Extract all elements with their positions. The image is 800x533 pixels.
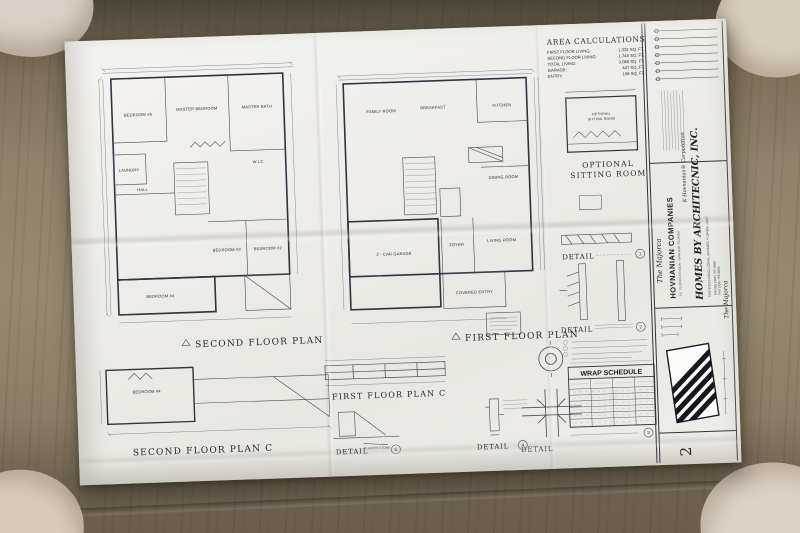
room-label-foyer: FOYER — [449, 242, 464, 248]
detail-3-number: 3 — [647, 430, 650, 435]
sheet-number: 2 — [677, 446, 695, 456]
architect-address: 7430 WILES ROAD, CORAL SPRINGS, FLORIDA … — [705, 216, 712, 297]
area-row-value: 1,748 SQ. FT. — [618, 52, 644, 58]
room-label-bedroom4-c: BEDROOM #4 — [133, 389, 162, 395]
company-name: HOVNANIAN COMPANIES — [665, 197, 678, 299]
room-label-breakfast: BREAKFAST — [420, 104, 446, 110]
room-label-dining: DINING ROOM — [488, 174, 518, 180]
room-label-bedroom2: BEDROOM #2 — [254, 245, 283, 251]
room-label-kitchen: KITCHEN — [492, 102, 511, 108]
architect-name: HOMES BY ARCHITECNIC, INC. — [689, 127, 706, 300]
optional-sitting-room-label2: SITTING ROOM — [588, 117, 615, 122]
detail-1-number: 1 — [639, 251, 642, 256]
wrap-schedule-title: WRAP SCHEDULE — [580, 369, 642, 378]
room-label-hall: HALL — [137, 187, 149, 192]
sheet-drawing: BEDROOM #5 MASTER BEDROOM MASTER BATH LA… — [64, 19, 741, 486]
room-label-living: LIVING ROOM — [487, 237, 516, 243]
area-row-value: 1,332 SQ. FT. — [618, 46, 644, 52]
room-label-garage: 2 - CAR GARAGE — [376, 251, 412, 257]
north-arrow-icon — [182, 339, 190, 345]
company-subline: S.E. FLORIDA DIVISION · MARGATE, FLORIDA — [676, 231, 682, 296]
optional-sitting-title2: SITTING ROOM — [570, 168, 646, 180]
architect-logo — [626, 341, 741, 437]
room-label-master-bedroom: MASTER BEDROOM — [176, 105, 217, 111]
detail-2-number: 2 — [639, 324, 642, 329]
area-calculations-title: AREA CALCULATIONS — [546, 34, 646, 46]
photo-scene: BEDROOM #5 MASTER BEDROOM MASTER BATH LA… — [0, 0, 800, 533]
first-floor-plan-c: FIRST FLOOR PLAN C — [325, 357, 447, 402]
second-floor-plan-title: SECOND FLOOR PLAN — [195, 336, 324, 350]
optional-sitting-room-label1: OPTIONAL — [592, 112, 611, 117]
optional-sitting-room-plan: OPTIONAL SITTING ROOM OPTIONAL SITTING R… — [566, 90, 648, 211]
room-label-bedroom5: BEDROOM #5 — [124, 112, 153, 118]
first-floor-plan-c-title: FIRST FLOOR PLAN C — [332, 389, 447, 402]
revision-lines — [653, 27, 719, 81]
wrap-schedule: WRAP SCHEDULE — [568, 360, 657, 439]
numbered-notes — [563, 338, 648, 360]
room-label-bedroom3: BEDROOM #3 — [213, 247, 242, 253]
area-row-value: 3,080 SQ. FT. — [619, 58, 645, 64]
room-label-wic: W.I.C. — [253, 159, 265, 164]
area-row-value: 447 SQ. FT. — [622, 64, 645, 70]
optional-sitting-title1: OPTIONAL — [582, 159, 634, 170]
room-label-laundry: LAUNDRY — [119, 167, 140, 173]
area-row-label: TOTAL LIVING: — [547, 61, 576, 67]
project-name: The Majorca — [655, 238, 665, 283]
architect-fax: FAX (305) 755-8851 — [717, 266, 722, 295]
detail-1: DETAIL 1 — [562, 233, 645, 262]
scale-bars — [661, 316, 682, 337]
room-label-family: FAMILY ROOM — [366, 108, 396, 114]
detail-1-label: DETAIL — [562, 252, 595, 261]
room-label-master-bath: MASTER BATH — [242, 103, 273, 109]
brand-name: K Hovnanian® Corporation — [679, 132, 688, 203]
area-calculations: AREA CALCULATIONS FIRST FLOOR LIVING: 1,… — [546, 34, 647, 78]
detail-2-label: DETAIL — [561, 325, 594, 334]
north-arrow-icon — [452, 333, 460, 339]
area-row-label: GARAGE: — [548, 67, 567, 73]
detail-2: DETAIL 2 — [558, 260, 647, 360]
area-row-label: SECOND FLOOR LIVING: — [547, 54, 597, 61]
area-row-label: ENTRY: — [548, 73, 563, 79]
blueprint-sheet: BEDROOM #5 MASTER BEDROOM MASTER BATH LA… — [64, 19, 741, 486]
second-floor-plan-c: BEDROOM #4 SECOND FLOOR PLAN C — [100, 363, 333, 460]
title-block: The Majorca HOVNANIAN COMPANIES S.E. FLO… — [647, 27, 731, 337]
area-row-value: 159 SQ. FT. — [622, 70, 645, 76]
second-floor-plan: BEDROOM #5 MASTER BEDROOM MASTER BATH LA… — [97, 61, 323, 353]
project-name-edge: The Majorca — [722, 280, 730, 319]
room-label-covered-entry: COVERED ENTRY — [456, 289, 493, 295]
room-label-bedroom4: BEDROOM #4 — [146, 293, 175, 299]
